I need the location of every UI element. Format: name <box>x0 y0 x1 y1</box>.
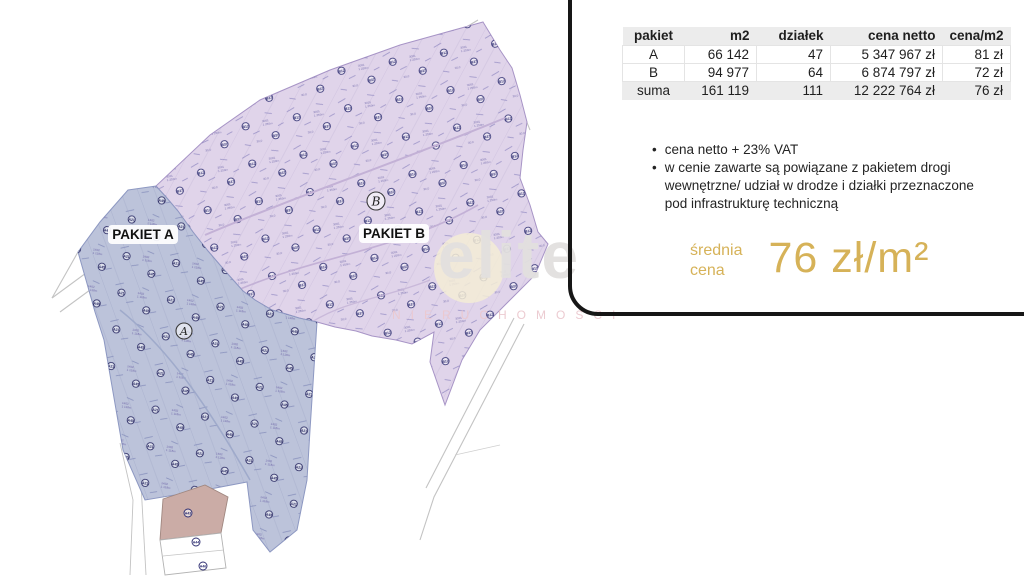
note-item-vat: • cena netto + 23% VAT <box>652 141 994 159</box>
notes-list: • cena netto + 23% VAT • w cenie zawarte… <box>652 141 994 213</box>
cell-dzialek: 64 <box>757 63 831 81</box>
cell-m2: 161 119 <box>685 81 757 99</box>
cell-dzialek: 47 <box>757 45 831 63</box>
bullet-marker: • <box>652 159 657 213</box>
cell-pakiet: B <box>623 63 685 81</box>
cell-pakiet: A <box>623 45 685 63</box>
cell-cena-m2: 81 zł <box>943 45 1011 63</box>
offer-slide: B12 B37 3001 1 250m 30,0 A21 A45 1402 <box>0 0 1024 576</box>
cell-cena-m2: 72 zł <box>943 63 1011 81</box>
price-table: pakiet m2 działek cena netto cena/m2 A 6… <box>622 27 1011 100</box>
svg-text:B: B <box>371 195 381 209</box>
svg-text:PAKIET B: PAKIET B <box>363 226 425 241</box>
average-price-label: średnia cena <box>690 241 742 281</box>
note-text: cena netto + 23% VAT <box>665 141 798 159</box>
label-pakiet-a: PAKIET A <box>108 225 178 244</box>
col-header-cena-netto: cena netto <box>831 27 943 45</box>
svg-text:A44: A44 <box>193 541 200 545</box>
table-row-a: A 66 142 47 5 347 967 zł 81 zł <box>623 45 1011 63</box>
cell-m2: 66 142 <box>685 45 757 63</box>
average-price-value: 76 zł/m² <box>768 237 929 280</box>
cell-cena-netto: 12 222 764 zł <box>831 81 943 99</box>
cell-cena-netto: 5 347 967 zł <box>831 45 943 63</box>
cell-m2: 94 977 <box>685 63 757 81</box>
label-pakiet-b: PAKIET B <box>359 224 429 243</box>
bottom-parcels: A43 A44 A46 <box>160 485 228 575</box>
price-table-header: pakiet m2 działek cena netto cena/m2 <box>623 27 1011 45</box>
col-header-dzialek: działek <box>757 27 831 45</box>
watermark-text: elite <box>438 222 580 288</box>
svg-text:PAKIET A: PAKIET A <box>112 227 174 242</box>
circle-letter-b: B <box>367 192 385 210</box>
cell-cena-m2: 76 zł <box>943 81 1011 99</box>
cell-pakiet: suma <box>623 81 685 99</box>
average-label-line1: średnia <box>690 241 742 261</box>
watermark-subtext: NIERUCHOMOŚCI <box>392 308 625 322</box>
table-row-b: B 94 977 64 6 874 797 zł 72 zł <box>623 63 1011 81</box>
col-header-pakiet: pakiet <box>623 27 685 45</box>
col-header-cena-m2: cena/m2 <box>943 27 1011 45</box>
svg-text:A: A <box>179 325 188 338</box>
svg-text:A43: A43 <box>185 512 192 516</box>
circle-letter-a: A <box>176 323 192 339</box>
note-item-roads: • w cenie zawarte są powiązane z pakiete… <box>652 159 994 213</box>
cell-cena-netto: 6 874 797 zł <box>831 63 943 81</box>
average-price-block: średnia cena 76 zł/m² <box>690 237 929 281</box>
bullet-marker: • <box>652 141 657 159</box>
note-text: w cenie zawarte są powiązane z pakietem … <box>665 159 994 213</box>
average-label-line2: cena <box>690 261 742 281</box>
cell-dzialek: 111 <box>757 81 831 99</box>
svg-text:A46: A46 <box>200 565 207 569</box>
col-header-m2: m2 <box>685 27 757 45</box>
table-row-suma: suma 161 119 111 12 222 764 zł 76 zł <box>623 81 1011 99</box>
